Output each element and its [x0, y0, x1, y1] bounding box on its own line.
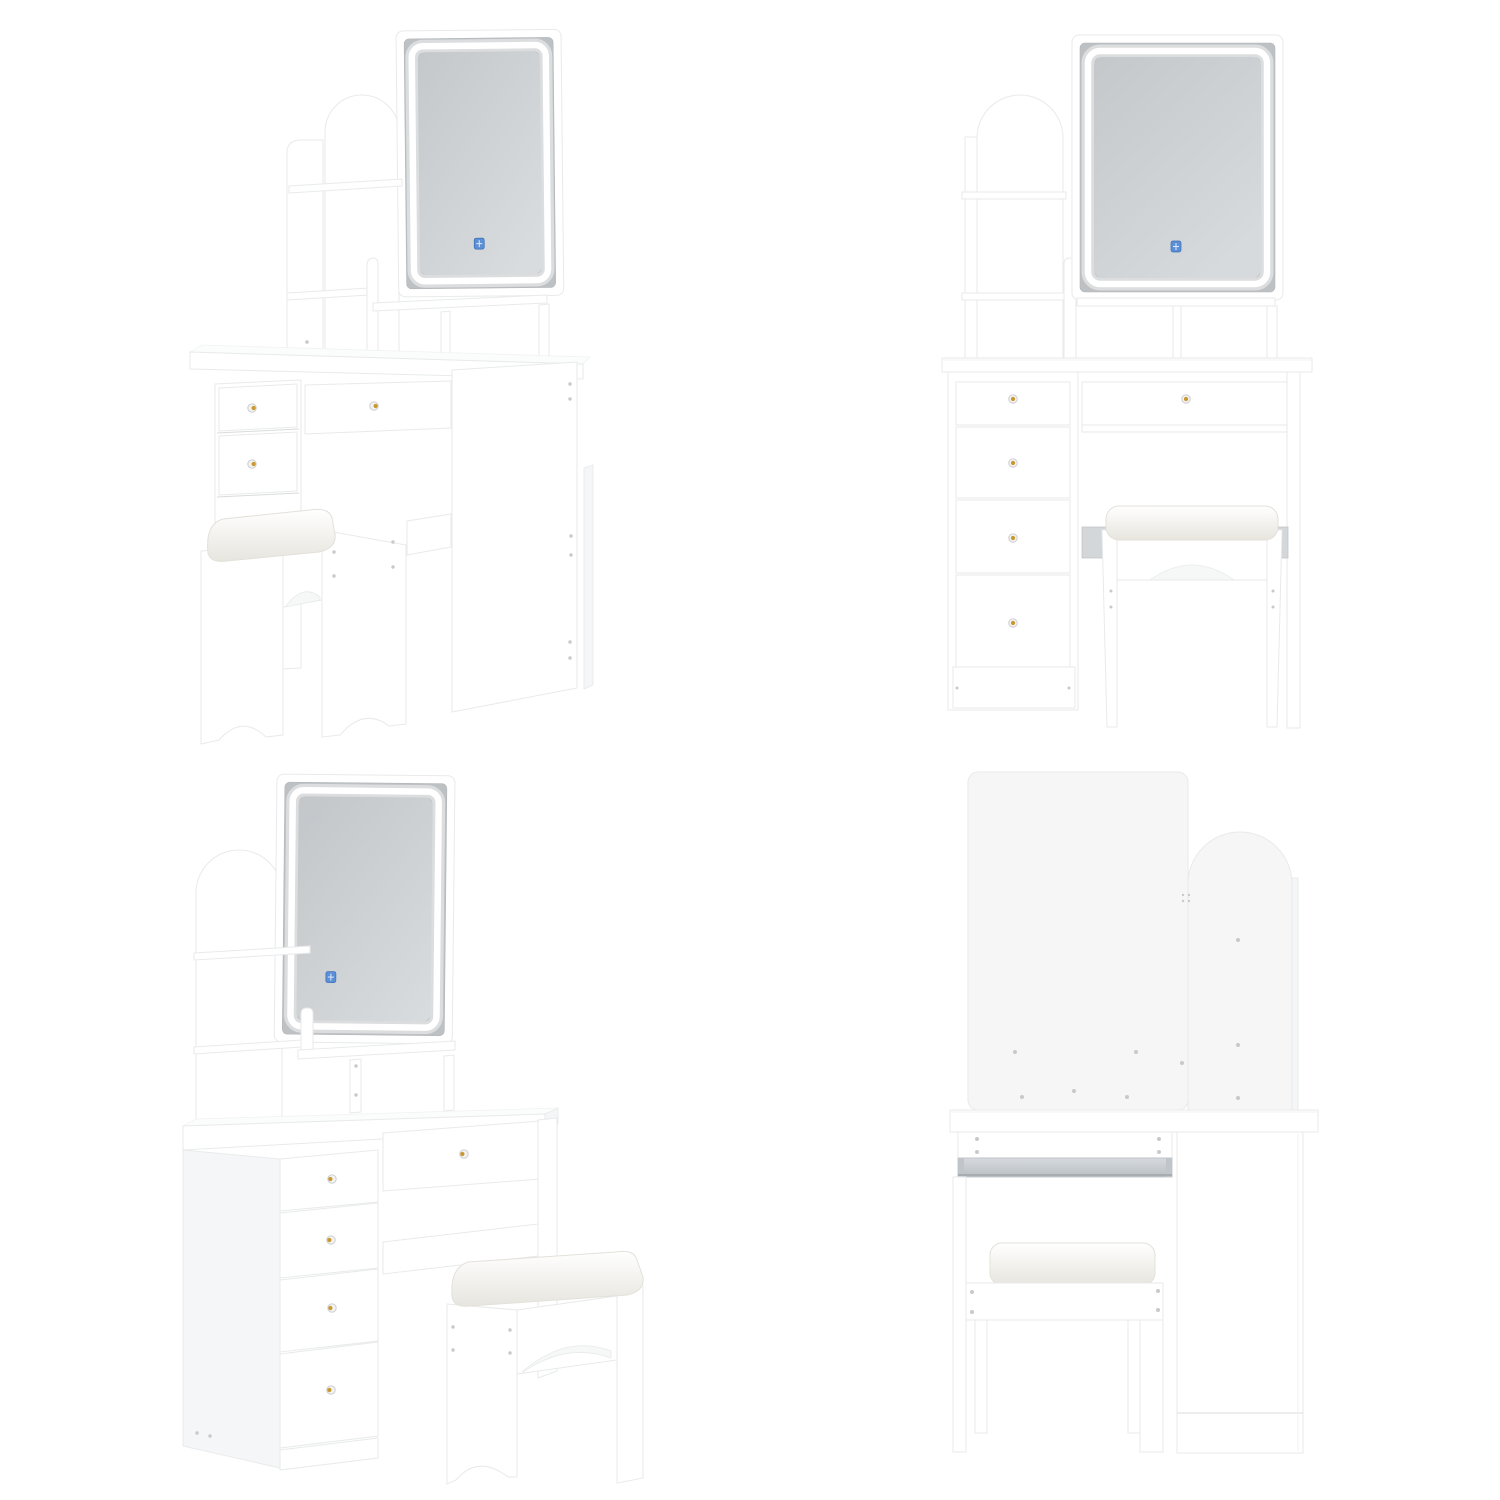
desk-side-panel — [183, 1150, 280, 1468]
stool-cushion — [1106, 506, 1278, 540]
led-mirror — [274, 774, 455, 1044]
hutch — [287, 95, 399, 360]
shelf — [962, 293, 1066, 300]
drawer — [280, 1342, 378, 1448]
drawer-knob — [327, 1236, 335, 1244]
led-mirror — [396, 29, 564, 297]
lower-stretcher — [958, 1283, 1163, 1320]
stool-side-panel — [201, 545, 283, 744]
panel-edge-strip — [1292, 878, 1298, 1110]
shelf — [962, 192, 1066, 199]
drawer-knob — [327, 1386, 335, 1394]
touch-sensor-icon — [474, 238, 484, 249]
stool-leg — [975, 1320, 987, 1433]
drawer-knob — [328, 1175, 336, 1183]
view-back — [750, 750, 1500, 1500]
drawer-knob — [248, 404, 256, 412]
desk-side-panel — [452, 362, 593, 712]
arch-back-panel — [325, 95, 399, 360]
stool-apron — [517, 1296, 617, 1374]
drawer-knob — [1009, 395, 1017, 403]
drawer-knob — [1009, 619, 1017, 627]
drawer-knob — [370, 402, 378, 410]
hutch-left-strip — [965, 137, 977, 363]
top-drawer — [1082, 382, 1290, 432]
back-panel — [968, 772, 1190, 1110]
led-mirror — [1072, 35, 1283, 300]
cubby-side — [444, 1055, 454, 1111]
vanity-angled-right — [0, 0, 750, 750]
view-front — [750, 0, 1500, 750]
stool — [1102, 506, 1282, 727]
cubby-divider — [441, 311, 450, 359]
desk-top — [950, 1110, 1318, 1132]
view-angled-right — [0, 0, 750, 750]
touch-sensor-icon — [326, 972, 336, 983]
top-drawer — [383, 1121, 540, 1191]
vanity-back — [750, 750, 1500, 1500]
desk-leg — [953, 1177, 966, 1452]
cabinet-back — [1177, 1132, 1303, 1453]
arch-back-panel — [977, 95, 1063, 363]
drawer-bank — [280, 1150, 378, 1470]
mirror-glass — [296, 796, 432, 1021]
drawer-knob — [1009, 534, 1017, 542]
arch-back-panel — [1188, 832, 1298, 1110]
under-mirror-cubbies — [1077, 298, 1277, 360]
top-drawer — [305, 381, 451, 434]
drawer-slide-rail — [958, 1158, 1172, 1177]
product-views-grid — [0, 0, 1500, 1500]
arch-back-panel — [196, 850, 282, 1120]
hutch — [962, 95, 1076, 363]
touch-sensor-icon — [1171, 241, 1181, 252]
desk-top — [942, 358, 1312, 372]
arched-divider — [301, 1008, 313, 1052]
drawer-knob — [328, 1304, 336, 1312]
under-mirror-shelf — [298, 1041, 455, 1059]
screws — [1110, 590, 1275, 609]
stool — [201, 509, 406, 744]
stool-leg — [1102, 530, 1117, 727]
drawer — [219, 432, 297, 495]
vanity-front — [750, 0, 1500, 750]
desk-leg — [1287, 372, 1300, 728]
cubby-divider — [1173, 306, 1181, 360]
base-kick — [953, 667, 1075, 708]
back-apron — [958, 1132, 1172, 1158]
cubby-divider — [350, 1059, 361, 1113]
stretcher-bar — [407, 514, 451, 555]
stool — [447, 1251, 643, 1484]
stool-leg — [1267, 530, 1282, 727]
stool-leg — [1128, 1320, 1140, 1433]
drawer-knob — [248, 460, 256, 468]
drawer-knob — [460, 1150, 468, 1158]
cubby-side — [539, 304, 549, 360]
stool-leg — [617, 1281, 643, 1483]
drawer — [219, 384, 297, 431]
drawer-knob — [1009, 459, 1017, 467]
vanity-angled-left — [0, 750, 750, 1500]
view-angled-left — [0, 750, 750, 1500]
hutch-left-panel — [287, 140, 323, 360]
drawer-bank — [948, 372, 1078, 710]
drawer-knob — [1182, 395, 1190, 403]
cubby-side — [1267, 306, 1277, 360]
desk-leg — [1140, 1320, 1163, 1452]
stool-side-panel — [447, 1304, 517, 1484]
stool-cushion — [990, 1243, 1155, 1285]
stool — [975, 1243, 1155, 1433]
stool-side-panel — [322, 530, 406, 737]
under-mirror-shelf — [1077, 298, 1275, 306]
back-edge-strip — [584, 465, 593, 689]
